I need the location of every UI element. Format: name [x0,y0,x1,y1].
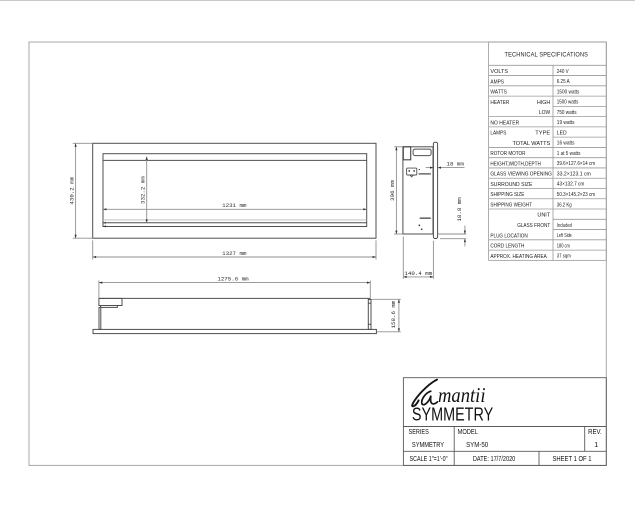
svg-text:158.6 mm: 158.6 mm [390,300,397,328]
svg-text:1231 mm: 1231 mm [222,202,247,209]
svg-text:SYMMETRY: SYMMETRY [412,442,444,449]
svg-text:VOLTS: VOLTS [490,69,508,75]
svg-text:1500 watts: 1500 watts [557,89,580,95]
svg-text:HEIGHT,WIDTH,DEPTH: HEIGHT,WIDTH,DEPTH [490,161,540,167]
svg-text:1327 mm: 1327 mm [222,250,247,257]
svg-text:REV.: REV. [588,429,602,436]
svg-text:WATTS: WATTS [490,90,507,96]
svg-text:AMPS: AMPS [490,79,504,85]
svg-text:240 V: 240 V [557,69,569,75]
svg-text:LAMPS: LAMPS [490,131,506,137]
svg-text:ROTOR MOTOR: ROTOR MOTOR [490,151,525,157]
svg-text:TOTAL WATTS: TOTAL WATTS [513,141,551,147]
svg-text:GLASS FRONT: GLASS FRONT [517,223,551,229]
svg-text:750 watts: 750 watts [557,110,577,116]
svg-text:HEATER: HEATER [490,100,509,106]
svg-text:18 mm: 18 mm [447,161,465,168]
svg-text:1: 1 [594,442,598,449]
svg-text:19 watts: 19 watts [557,120,575,126]
svg-text:430.2 mm: 430.2 mm [68,176,75,204]
svg-text:180 cm: 180 cm [557,243,570,249]
svg-text:50.3×145.2×23 cm: 50.3×145.2×23 cm [557,192,596,198]
svg-text:APPROX. HEATING AREA: APPROX. HEATING AREA [490,254,547,260]
svg-text:SCALE 1"=1'-0": SCALE 1"=1'-0" [410,456,448,463]
svg-text:SERIES: SERIES [409,429,430,436]
svg-text:HIGH: HIGH [537,100,550,106]
svg-text:SYMMETRY: SYMMETRY [412,404,493,424]
svg-text:MODEL: MODEL [458,429,478,436]
svg-text:LOW: LOW [539,110,551,116]
svg-text:GLASS VIEWING OPENING: GLASS VIEWING OPENING [490,172,552,178]
svg-text:1500 watts: 1500 watts [557,100,579,106]
svg-text:DATE: 17/7/2020: DATE: 17/7/2020 [473,456,515,463]
svg-text:1 at 5 watts: 1 at 5 watts [557,151,581,157]
svg-text:18.8 mm: 18.8 mm [456,197,463,222]
svg-text:TECHNICAL SPECIFICATIONS: TECHNICAL SPECIFICATIONS [505,51,589,58]
svg-text:NO HEATER: NO HEATER [490,120,519,126]
svg-text:mantii: mantii [438,383,486,407]
svg-text:UNIT: UNIT [537,213,550,219]
svg-text:SHIPPING WEIGHT: SHIPPING WEIGHT [490,202,532,208]
svg-text:36.2 Kg: 36.2 Kg [557,202,572,208]
svg-text:396 mm: 396 mm [389,179,396,200]
svg-text:6.25 A: 6.25 A [557,79,570,85]
svg-text:SHIPPING SIZE: SHIPPING SIZE [490,192,524,198]
svg-text:SHEET 1 OF 1: SHEET 1 OF 1 [553,456,592,463]
svg-text:16 watts: 16 watts [557,141,575,147]
svg-text:Included: Included [557,223,572,229]
svg-text:140.4 mm: 140.4 mm [404,270,432,277]
svg-text:39.6×127.6×14 cm: 39.6×127.6×14 cm [557,161,596,167]
svg-text:CORD LENGTH: CORD LENGTH [490,244,524,250]
svg-text:33.2×123.1 cm: 33.2×123.1 cm [557,171,591,177]
svg-text:TYPE: TYPE [535,131,550,137]
svg-text:SYM-50: SYM-50 [466,442,488,449]
svg-text:37 sqm: 37 sqm [557,254,571,260]
svg-text:SURROUND SIZE: SURROUND SIZE [490,182,532,188]
svg-text:1275.6 mm: 1275.6 mm [217,276,249,283]
svg-text:Left Side: Left Side [557,233,572,239]
svg-text:PLUG LOCATION: PLUG LOCATION [490,233,527,239]
svg-text:43×132.7 cm: 43×132.7 cm [557,182,585,188]
svg-text:332.2 mm: 332.2 mm [140,176,147,204]
svg-text:LED: LED [557,130,567,136]
